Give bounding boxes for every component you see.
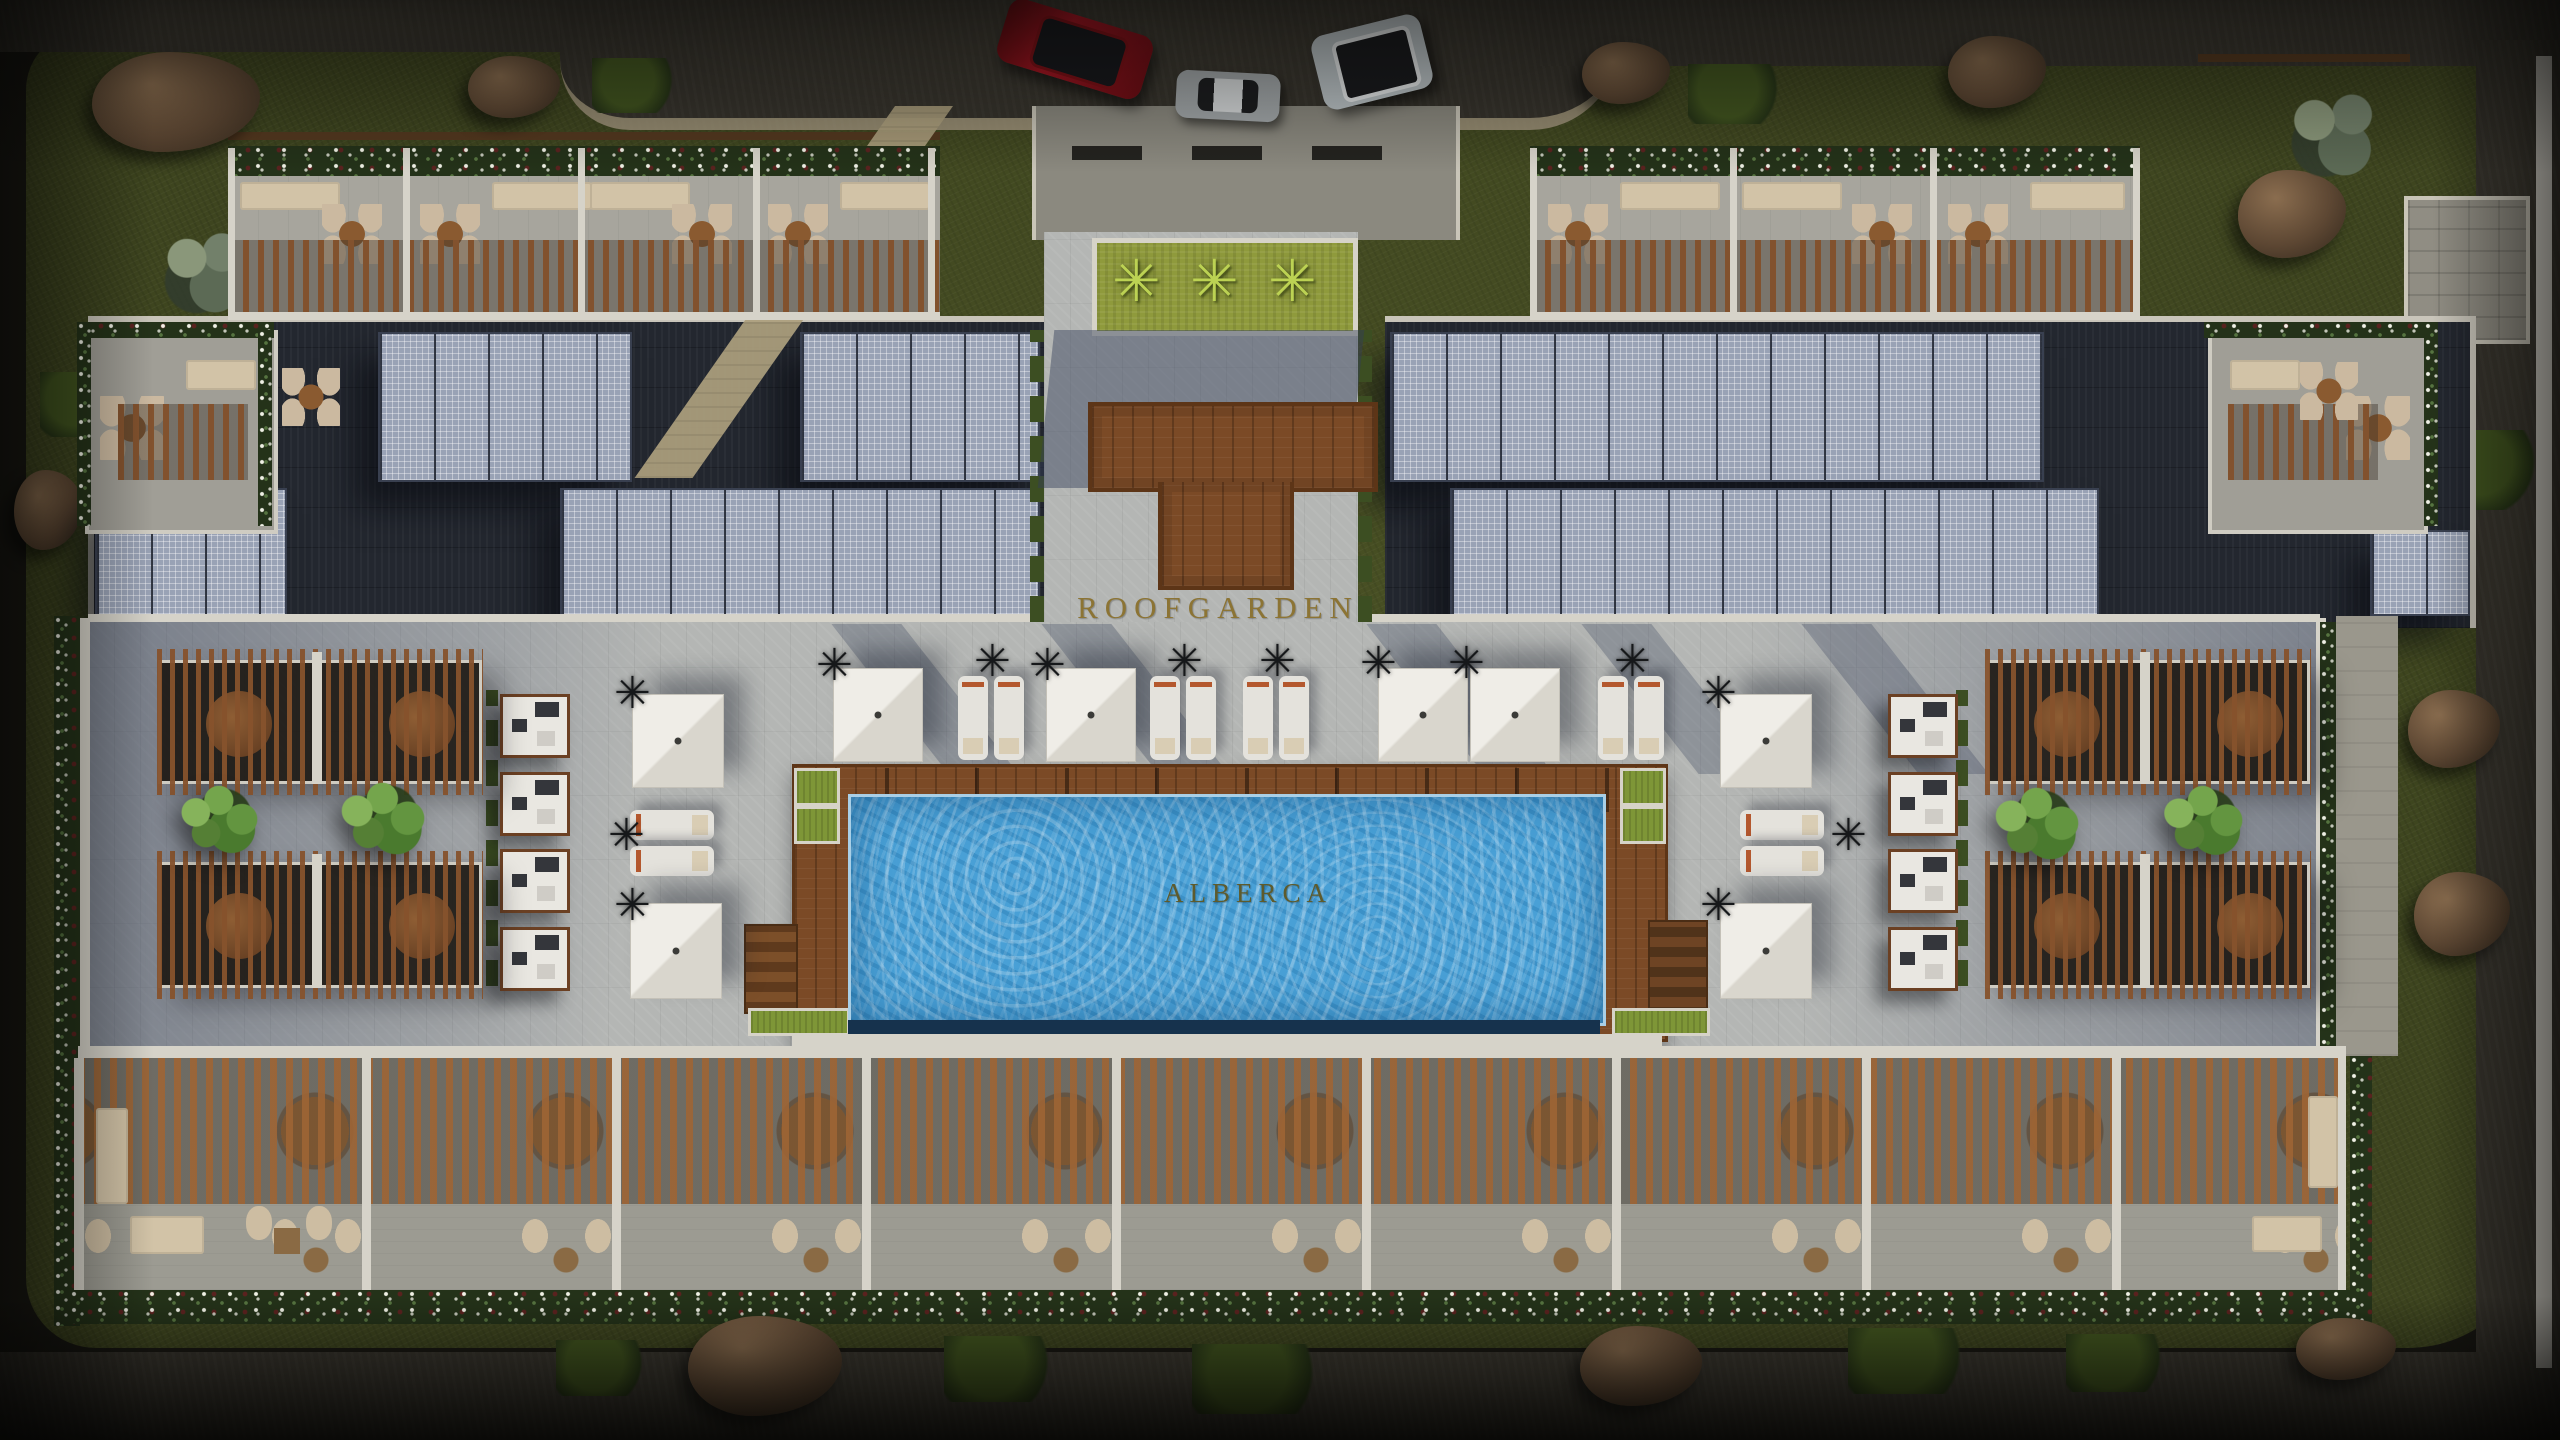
pergola-post — [312, 854, 322, 988]
sofa — [186, 360, 256, 390]
tree — [318, 775, 458, 865]
planter-box — [748, 1008, 850, 1036]
cabana-daybed — [500, 772, 570, 836]
pergola-slats — [1530, 240, 2140, 312]
tree — [160, 778, 288, 864]
hedge-bottom — [70, 1290, 2360, 1324]
cabana-daybed — [500, 694, 570, 758]
boundary-wall-right — [2536, 56, 2552, 1368]
palm-icon: ✳ — [1360, 642, 1397, 686]
cabana-daybed — [500, 849, 570, 913]
wall — [1530, 312, 2140, 320]
fence-top-left — [228, 132, 940, 140]
hedge-outer-right — [2320, 622, 2336, 1052]
terrace-divider — [1930, 148, 1937, 318]
planter-box — [1620, 768, 1666, 806]
bush — [592, 58, 677, 113]
pergola-post — [2140, 652, 2150, 784]
pool-edge — [848, 1020, 1600, 1034]
cabana-daybed — [500, 927, 570, 991]
palm-icon: ✳ — [1166, 640, 1203, 684]
road-top-left — [0, 0, 640, 52]
hedge — [2424, 322, 2438, 526]
hedge — [2350, 1056, 2372, 1324]
hedge-strip — [486, 690, 498, 986]
solar-array — [378, 332, 632, 482]
palm-icon: ✳ — [1700, 884, 1737, 928]
roofgarden-deck — [1088, 402, 1378, 492]
sofa — [1742, 182, 1842, 210]
planter-box — [1620, 806, 1666, 844]
palm-icon: ✳ — [1190, 252, 1239, 310]
lounger — [1598, 676, 1628, 760]
solar-array — [560, 488, 1040, 616]
palm-icon: ✳ — [608, 814, 645, 858]
fence-top-right — [2198, 54, 2410, 62]
lounger — [1740, 846, 1824, 876]
wall — [1372, 614, 2320, 622]
terrace-divider — [1530, 148, 1537, 318]
palm-icon: ✳ — [816, 644, 853, 688]
rooftop-plan-render: ✳ ✳ ✳ ROOFGARDEN ALBERCA — [0, 0, 2560, 1440]
lounger — [1634, 676, 1664, 760]
lounger — [994, 676, 1024, 760]
lounger — [958, 676, 988, 760]
planter-box — [794, 806, 840, 844]
tree — [1972, 780, 2112, 870]
palm-icon: ✳ — [1029, 644, 1066, 688]
hedge — [2204, 322, 2424, 338]
bush — [944, 1336, 1056, 1402]
bush — [1848, 1328, 1970, 1394]
palm-icon: ✳ — [1700, 672, 1737, 716]
sofa — [2308, 1096, 2338, 1188]
stair — [744, 924, 798, 1014]
sofa — [1620, 182, 1720, 210]
palm-icon: ✳ — [1614, 640, 1651, 684]
cabana-daybed — [1888, 694, 1958, 758]
olive-tree — [2262, 80, 2412, 195]
pool-label: ALBERCA — [1048, 878, 1448, 909]
palm-icon: ✳ — [1268, 252, 1317, 310]
wall — [88, 614, 1030, 622]
terrace-divider — [228, 148, 235, 318]
ottoman — [274, 1228, 300, 1254]
sofa — [96, 1108, 128, 1204]
wall — [78, 1046, 2346, 1058]
solar-array — [1390, 332, 2044, 482]
entrance-grate — [1312, 146, 1382, 160]
sofa — [2230, 360, 2300, 390]
cabana-daybed — [1888, 927, 1958, 991]
wall — [74, 1058, 84, 1290]
solar-array — [1450, 488, 2099, 616]
lounger — [1243, 676, 1273, 760]
roofgarden-label: ROOFGARDEN — [1018, 590, 1418, 626]
cabana-daybed — [1888, 772, 1958, 836]
palm-icon: ✳ — [1259, 640, 1296, 684]
pergola-slats — [118, 404, 248, 480]
planter-box — [1612, 1008, 1710, 1036]
terrace-divider — [753, 148, 760, 318]
stair — [1648, 920, 1708, 1019]
terrace-divider — [403, 148, 410, 318]
entrance-grate — [1072, 146, 1142, 160]
hedge — [77, 322, 91, 526]
pergola-post — [312, 652, 322, 784]
hedge — [258, 330, 272, 526]
car-roof — [1330, 24, 1423, 104]
sofa — [2252, 1216, 2322, 1252]
hedge — [1530, 146, 2140, 176]
sofa — [2030, 182, 2125, 210]
dining-set — [282, 368, 340, 426]
lounge-chair — [306, 1206, 332, 1240]
entrance-pad — [1032, 106, 1460, 240]
solar-array — [2370, 530, 2470, 616]
terrace-divider — [2133, 148, 2140, 318]
palm-icon: ✳ — [614, 672, 651, 716]
hedge — [81, 322, 274, 338]
wall — [2338, 1058, 2346, 1290]
terrace-divider — [578, 148, 585, 318]
pergola-post — [2140, 854, 2150, 988]
lounger — [1279, 676, 1309, 760]
terrace-divider — [928, 148, 935, 318]
palm-icon: ✳ — [1448, 642, 1485, 686]
palm-icon: ✳ — [1830, 814, 1867, 858]
tree — [2142, 778, 2274, 866]
grey-sports-car — [1175, 69, 1281, 122]
planter-box — [794, 768, 840, 806]
solar-array — [800, 332, 1040, 482]
path-right — [2336, 616, 2398, 1056]
sofa — [840, 182, 930, 210]
bush — [2066, 1334, 2168, 1392]
wall — [80, 618, 90, 1054]
bush — [1192, 1344, 1324, 1414]
cabana-daybed — [1888, 849, 1958, 913]
roofgarden-deck-stem — [1158, 482, 1294, 590]
sofa — [130, 1216, 204, 1254]
dining-set — [2300, 362, 2358, 420]
lounge-chair — [246, 1206, 272, 1240]
palm-icon: ✳ — [974, 640, 1011, 684]
pool — [848, 794, 1606, 1026]
terrace-divider — [1730, 148, 1737, 318]
bush — [1688, 64, 1783, 124]
entrance-grate — [1192, 146, 1262, 160]
lounger — [1150, 676, 1180, 760]
lounger — [1186, 676, 1216, 760]
car-roof — [1197, 77, 1259, 113]
palm-icon: ✳ — [614, 884, 651, 928]
lounger — [1740, 810, 1824, 840]
terrace-dividers — [362, 1058, 2122, 1290]
bush — [556, 1340, 648, 1396]
palm-icon: ✳ — [1112, 252, 1161, 310]
sofa — [492, 182, 592, 210]
